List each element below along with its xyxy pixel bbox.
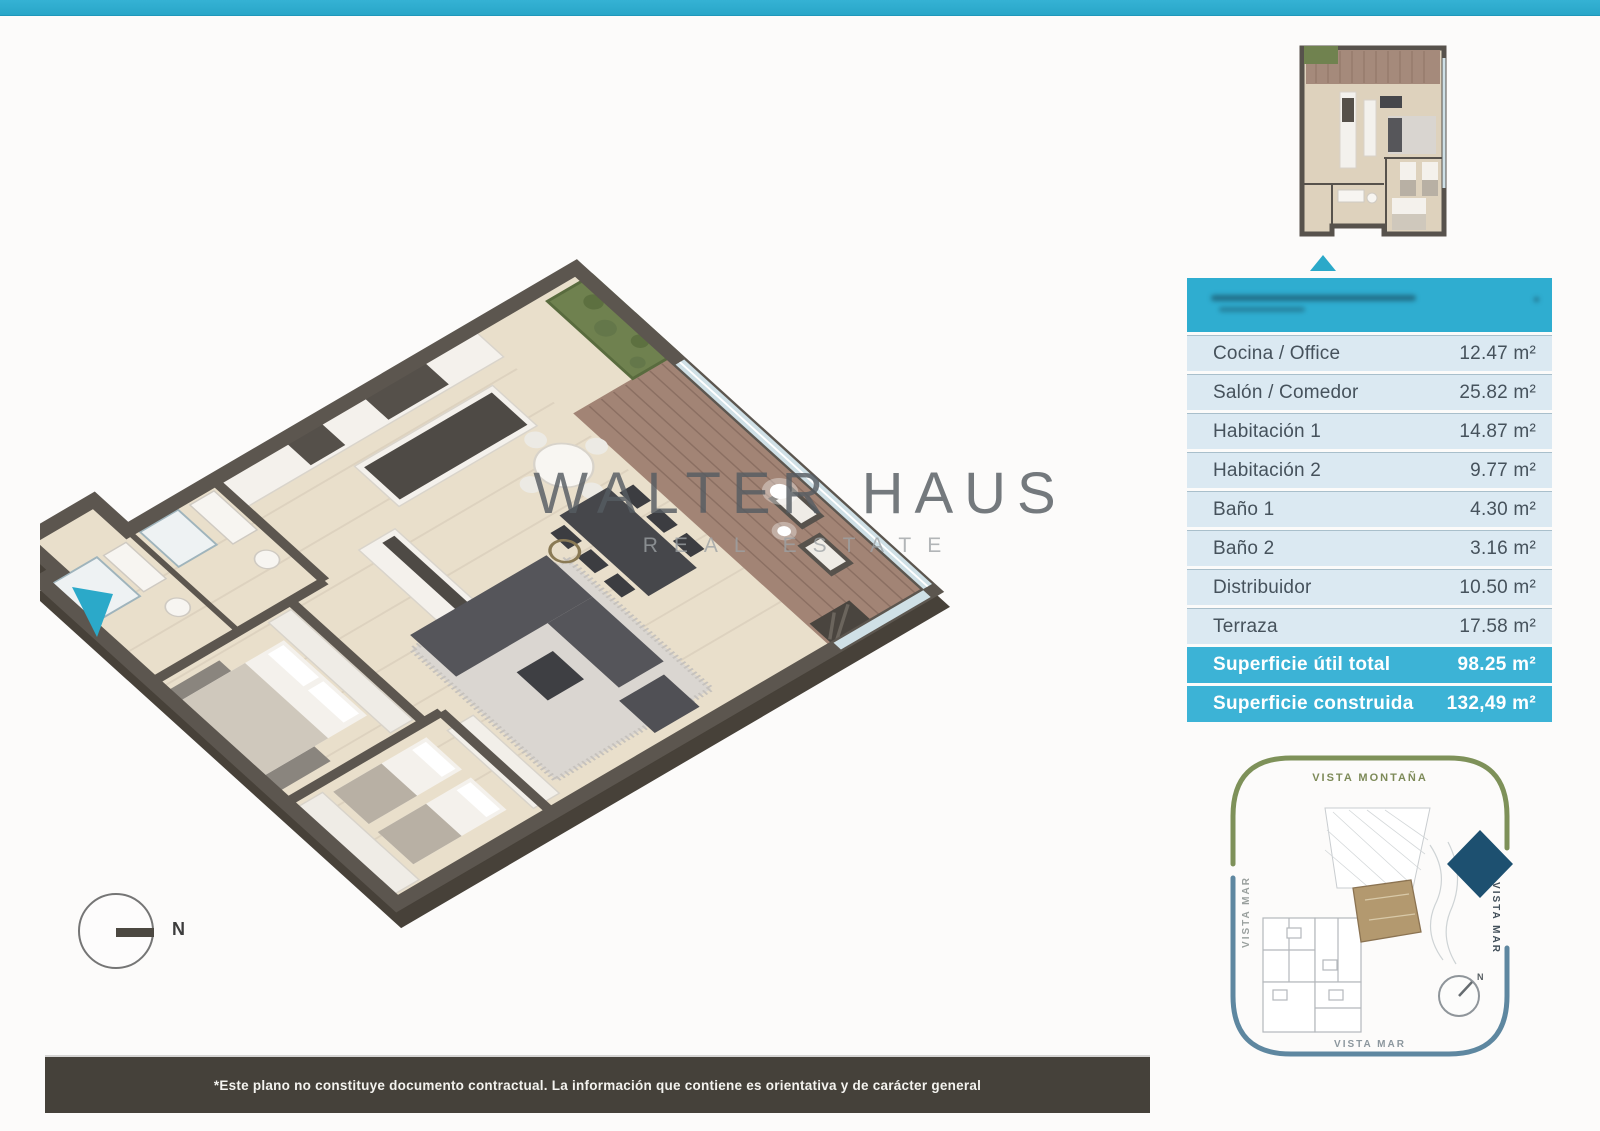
vista-mar-bottom-label: VISTA MAR — [1334, 1039, 1406, 1050]
room-label: Habitación 1 — [1213, 421, 1321, 443]
table-row: Cocina / Office 12.47 m² — [1187, 335, 1552, 371]
top-accent-bar — [0, 0, 1600, 16]
site-plan: VISTA MONTAÑA VISTA MAR VISTA MAR VISTA … — [1225, 750, 1515, 1062]
mini-hedge — [1304, 46, 1338, 64]
disclaimer-bar: *Este plano no constituye documento cont… — [45, 1057, 1150, 1113]
room-label: Habitación 2 — [1213, 460, 1321, 482]
room-label: Baño 1 — [1213, 499, 1274, 521]
total-useful-area-row: Superficie útil total 98.25 m² — [1187, 647, 1552, 683]
room-area: 9.77 m² — [1470, 460, 1536, 482]
mini-plan-arrow-icon — [1310, 255, 1336, 271]
room-area: 17.58 m² — [1459, 616, 1536, 638]
north-compass: N — [78, 893, 228, 971]
mini-floor-plan — [1288, 38, 1460, 252]
highlighted-unit — [1353, 880, 1421, 942]
site-compass-icon: N — [1439, 972, 1484, 1016]
compass-north-label: N — [172, 919, 185, 940]
site-buildings — [1263, 918, 1361, 1032]
total-built-area-row: Superficie construida 132,49 m² — [1187, 686, 1552, 722]
table-title-redacted — [1534, 297, 1539, 302]
site-compass-north-label: N — [1477, 972, 1484, 982]
table-title-redacted — [1219, 307, 1305, 312]
disclaimer-text: *Este plano no constituye documento cont… — [214, 1078, 981, 1093]
total-area: 132,49 m² — [1447, 693, 1536, 715]
table-row: Salón / Comedor 25.82 m² — [1187, 374, 1552, 410]
table-row: Baño 2 3.16 m² — [1187, 530, 1552, 566]
room-area: 3.16 m² — [1470, 538, 1536, 560]
vista-mar-right-label: VISTA MAR — [1490, 882, 1501, 954]
vista-montana-label: VISTA MONTAÑA — [1312, 771, 1428, 784]
total-label: Superficie útil total — [1213, 654, 1390, 676]
table-row: Baño 1 4.30 m² — [1187, 491, 1552, 527]
room-area: 25.82 m² — [1459, 382, 1536, 404]
room-area: 14.87 m² — [1459, 421, 1536, 443]
table-title-redacted — [1211, 295, 1416, 301]
table-row: Habitación 2 9.77 m² — [1187, 452, 1552, 488]
room-area: 12.47 m² — [1459, 343, 1536, 365]
total-area: 98.25 m² — [1458, 654, 1536, 676]
compass-circle-icon — [78, 893, 154, 969]
total-label: Superficie construida — [1213, 693, 1414, 715]
table-row: Distribuidor 10.50 m² — [1187, 569, 1552, 605]
area-table-header — [1187, 278, 1552, 332]
vista-mar-left-label: VISTA MAR — [1241, 876, 1252, 948]
compass-needle-icon — [116, 928, 154, 937]
room-label: Baño 2 — [1213, 538, 1274, 560]
room-label: Distribuidor — [1213, 577, 1312, 599]
table-row: Terraza 17.58 m² — [1187, 608, 1552, 644]
area-table: Cocina / Office 12.47 m² Salón / Comedor… — [1187, 278, 1552, 722]
site-hatch-zone — [1325, 808, 1430, 888]
room-label: Salón / Comedor — [1213, 382, 1359, 404]
room-label: Cocina / Office — [1213, 343, 1340, 365]
room-area: 4.30 m² — [1470, 499, 1536, 521]
room-area: 10.50 m² — [1459, 577, 1536, 599]
room-label: Terraza — [1213, 616, 1278, 638]
table-row: Habitación 1 14.87 m² — [1187, 413, 1552, 449]
